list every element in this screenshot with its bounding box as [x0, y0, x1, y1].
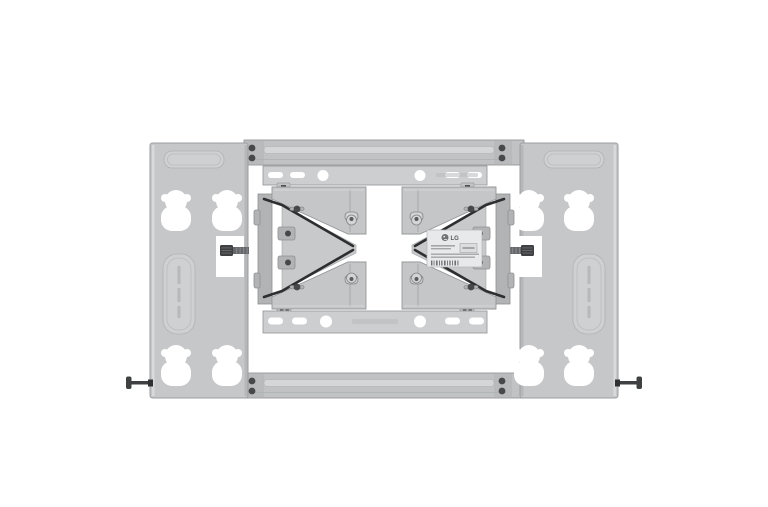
keyhole-cutout: [514, 190, 544, 231]
rail-emboss-text: [436, 173, 478, 177]
keyhole-cutout: [161, 345, 191, 386]
emboss-text-mark: [588, 288, 591, 302]
rail-slot: [290, 172, 305, 178]
bolt-head: [637, 377, 643, 390]
emboss-text-mark: [588, 306, 591, 318]
rail-slot: [268, 318, 283, 325]
lg-logo: LG: [442, 234, 460, 242]
bolt-collar: [148, 380, 153, 387]
rail-hole: [320, 316, 332, 328]
frame-screw: [499, 155, 506, 162]
keyhole-cutout: [212, 190, 242, 231]
plate-side-emboss: [573, 254, 605, 334]
wall-mount-illustration: LG: [0, 0, 768, 507]
frame-top-bar: [244, 140, 524, 165]
frame-screw: [499, 378, 506, 385]
rail-hole: [318, 170, 329, 181]
label-text-line: [431, 254, 479, 255]
rail-hole: [414, 316, 426, 328]
keyhole-cutout: [212, 345, 242, 386]
frame-screw: [499, 388, 506, 395]
rail-slot: [469, 318, 484, 325]
keyhole-cutout: [161, 190, 191, 231]
tilt-bolt-right: [506, 236, 542, 277]
frame-screw: [249, 155, 256, 162]
rail-slot: [292, 318, 307, 325]
lg-logo-text: LG: [451, 236, 460, 242]
emboss-text-mark: [178, 306, 181, 318]
frame-bottom-bar: [244, 373, 524, 398]
frame-screw: [249, 378, 256, 385]
plate-top-emboss-slot: [164, 151, 224, 168]
rail-hole: [415, 170, 426, 181]
label-text-line: [431, 248, 451, 249]
rail-slot: [445, 318, 460, 325]
anchor-bolt-right: [615, 377, 642, 390]
plate-side-emboss: [163, 254, 195, 334]
rail-slot: [268, 172, 283, 178]
frame-screw: [249, 145, 256, 152]
rail-emboss-text: [352, 319, 398, 324]
keyhole-cutout: [514, 345, 544, 386]
frame-screw: [249, 388, 256, 395]
bolt-head: [126, 377, 132, 390]
bolt-collar: [615, 380, 620, 387]
keyhole-cutout: [564, 345, 594, 386]
anchor-bolt-left: [126, 377, 153, 390]
label-text-line: [431, 257, 475, 258]
emboss-text-mark: [178, 266, 181, 284]
lg-logo-icon: [442, 234, 449, 241]
frame-screw: [499, 145, 506, 152]
product-label: LG: [427, 230, 482, 267]
emboss-text-mark: [588, 266, 591, 284]
label-text-line: [431, 245, 455, 247]
keyhole-cutout: [564, 190, 594, 231]
product-photo: Product photo of an LG slim TV wall moun…: [0, 0, 768, 507]
emboss-text-mark: [178, 288, 181, 302]
left-arm-assembly: [254, 187, 366, 309]
plate-top-emboss-slot: [544, 151, 604, 168]
